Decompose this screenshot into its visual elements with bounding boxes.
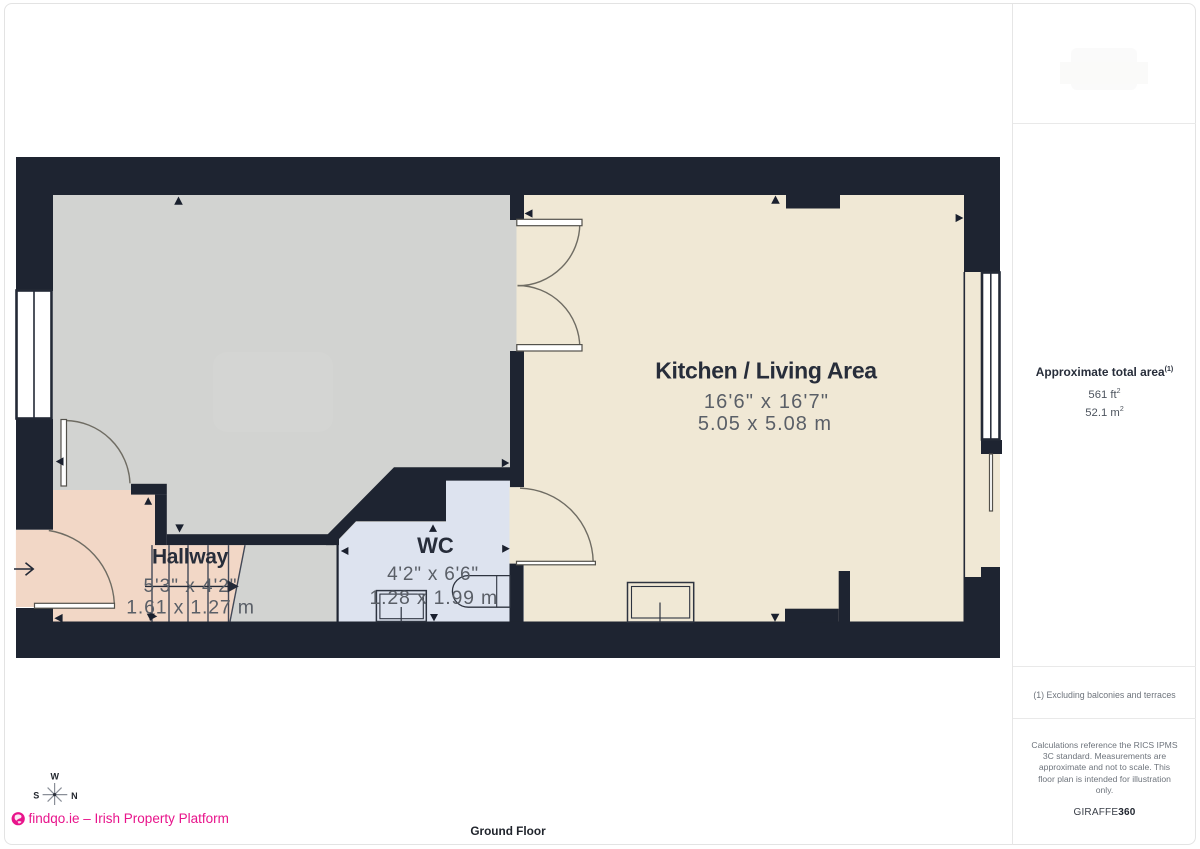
svg-text:W: W <box>51 772 60 782</box>
svg-text:N: N <box>71 791 78 801</box>
svg-text:5.05 x 5.08 m: 5.05 x 5.08 m <box>698 413 832 435</box>
svg-text:WC: WC <box>417 533 454 558</box>
svg-text:1.61 x 1.27 m: 1.61 x 1.27 m <box>126 597 255 619</box>
svg-text:5'3" x 4'2": 5'3" x 4'2" <box>143 576 237 597</box>
svg-text:S: S <box>33 791 39 801</box>
svg-text:4'2" x 6'6": 4'2" x 6'6" <box>387 564 479 585</box>
svg-text:16'6" x 16'7": 16'6" x 16'7" <box>704 391 829 413</box>
svg-text:Hallway: Hallway <box>152 546 229 569</box>
svg-text:1.28 x 1.99 m: 1.28 x 1.99 m <box>370 587 499 609</box>
svg-text:Kitchen / Living Area: Kitchen / Living Area <box>655 358 877 384</box>
